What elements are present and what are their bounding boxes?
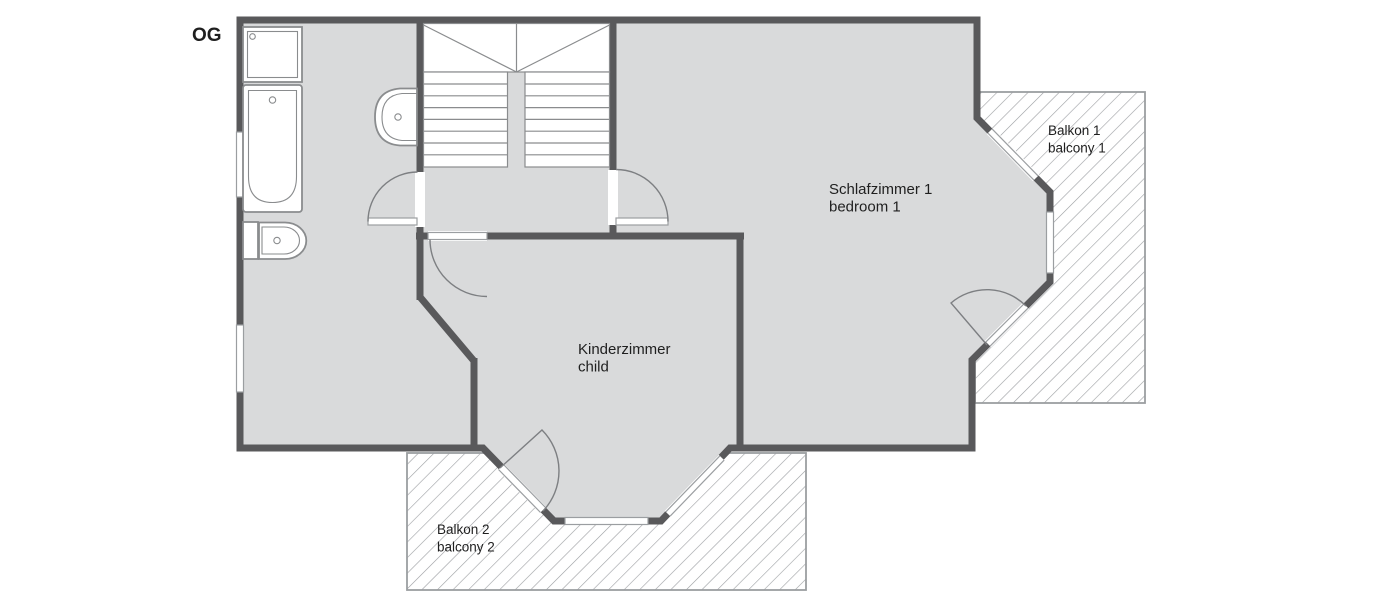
toilet [243, 222, 306, 259]
room-label-balcony2-de: Balkon 2 [437, 522, 490, 537]
bathtub [243, 85, 302, 212]
room-label-bedroom1-en: bedroom 1 [829, 199, 901, 216]
room-label-child-en: child [578, 359, 609, 376]
room-label-bedroom1-de: Schlafzimmer 1 [829, 181, 932, 198]
window-bedroom-bay-front [1047, 212, 1054, 273]
floorplan-svg: OG Schlafzimmer 1 bedroom 1 Kinderzimmer… [0, 0, 1400, 600]
shower [243, 27, 302, 82]
window-child-bay-front [565, 518, 648, 525]
sink [375, 89, 417, 146]
room-label-balcony1-de: Balkon 1 [1048, 123, 1101, 138]
room-label-balcony2-en: balcony 2 [437, 540, 495, 555]
room-label-balcony1-en: balcony 1 [1048, 141, 1106, 156]
room-label-child-de: Kinderzimmer [578, 341, 671, 358]
floorplan-canvas: OG Schlafzimmer 1 bedroom 1 Kinderzimmer… [0, 0, 1400, 600]
floor-label: OG [192, 25, 222, 46]
building-outline [240, 20, 1050, 521]
window-hall-left-2 [237, 325, 244, 392]
